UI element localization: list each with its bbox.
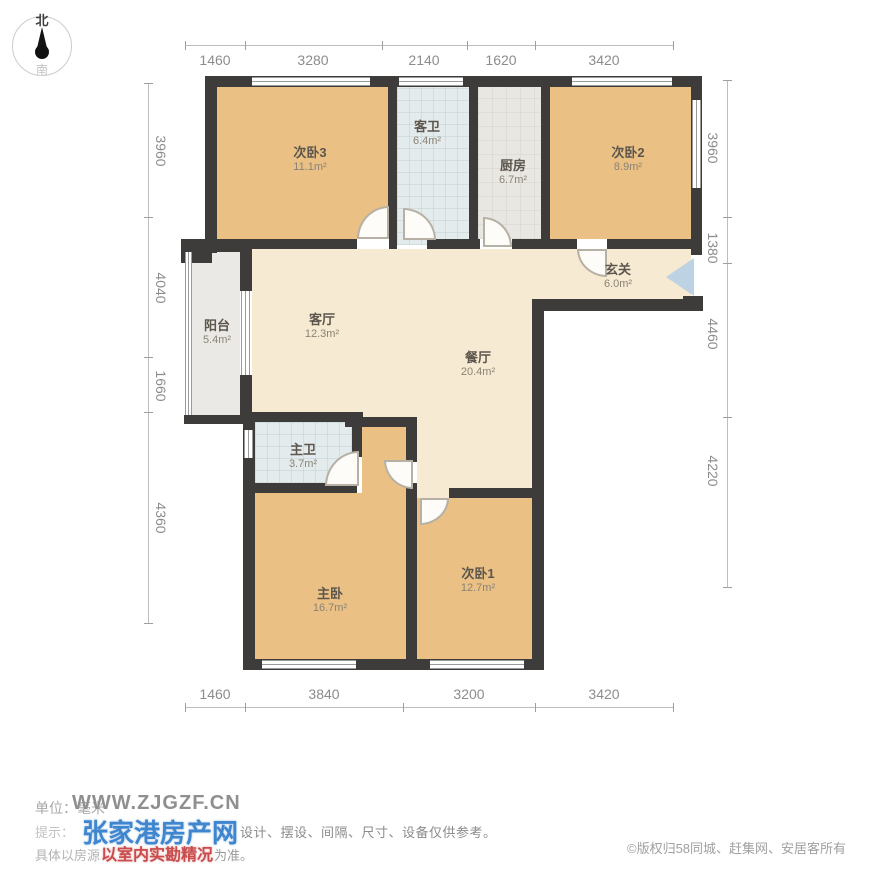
wall-kitchen-bedroom2 — [541, 87, 550, 239]
dimline-right — [727, 80, 728, 587]
disclaimer-text: 设计、摆设、间隔、尺寸、设备仅供参考。 — [240, 822, 497, 841]
room-area: 12.3m² — [305, 327, 339, 341]
wall-hall-4 — [512, 239, 577, 249]
dim-tick — [144, 217, 153, 218]
window-bedroom2-right — [692, 100, 701, 188]
dim-top-2: 3280 — [283, 52, 343, 68]
window-balcony-slider — [241, 291, 250, 375]
wall-nook-right — [406, 417, 417, 462]
room-name: 次卧3 — [293, 145, 326, 160]
wall-hall-3 — [427, 239, 480, 249]
dim-tick — [245, 41, 246, 50]
label-master: 主卧 16.7m² — [313, 586, 347, 615]
room-name: 玄关 — [604, 262, 632, 277]
dim-right-4: 4220 — [705, 441, 721, 501]
dim-tick — [723, 587, 732, 588]
dim-right-1: 3960 — [705, 118, 721, 178]
room-area: 16.7m² — [313, 601, 347, 615]
room-name: 主卧 — [313, 586, 347, 601]
wall-exterior-left-upper — [205, 76, 217, 253]
entry-arrow-icon — [666, 258, 694, 296]
dim-tick — [673, 703, 674, 712]
dim-bottom-1: 1460 — [185, 686, 245, 702]
label-guest-bath: 客卫 6.4m² — [413, 119, 441, 148]
dim-tick — [467, 41, 468, 50]
room-area: 3.7m² — [289, 457, 317, 471]
room-name: 次卧1 — [461, 566, 495, 581]
dim-top-3: 2140 — [394, 52, 454, 68]
dim-top-5: 3420 — [574, 52, 634, 68]
dim-top-4: 1620 — [471, 52, 531, 68]
wall-exterior-right-lower — [532, 299, 544, 670]
label-master-bath: 主卫 3.7m² — [289, 442, 317, 471]
label-kitchen: 厨房 6.7m² — [499, 158, 527, 187]
dim-tick — [185, 703, 186, 712]
dim-bottom-4: 3420 — [574, 686, 634, 702]
floorplan-page: 北 南 — [0, 0, 880, 875]
floor-dining-south — [417, 420, 532, 498]
label-entry: 玄关 6.0m² — [604, 262, 632, 291]
window-bedroom1 — [430, 660, 524, 669]
room-area: 8.9m² — [611, 160, 644, 174]
dim-bottom-2: 3840 — [294, 686, 354, 702]
room-area: 6.7m² — [499, 173, 527, 187]
compass-south-label: 南 — [13, 61, 71, 78]
compass-needle-dot — [35, 45, 49, 59]
window-balcony-left — [185, 252, 192, 415]
label-bedroom3: 次卧3 11.1m² — [293, 145, 326, 174]
room-name: 餐厅 — [461, 350, 495, 365]
disclaimer-line3-prefix: 具体以房源 — [35, 845, 100, 864]
site-watermark: WWW.ZJGZF.CN — [72, 792, 241, 815]
room-name: 客厅 — [305, 312, 339, 327]
wall-hall-2 — [389, 239, 397, 249]
window-masterbath-left — [244, 430, 253, 458]
dimline-bottom — [185, 707, 673, 708]
disclaimer-line3-suffix: 为准。 — [214, 845, 253, 864]
dim-tick — [382, 41, 383, 50]
dim-tick — [723, 217, 732, 218]
dim-top-1: 1460 — [185, 52, 245, 68]
dim-tick — [723, 263, 732, 264]
dim-tick — [144, 357, 153, 358]
red-watermark: 以室内实勘精况 — [101, 841, 213, 865]
room-name: 厨房 — [499, 158, 527, 173]
dim-tick — [144, 83, 153, 84]
wall-master-bedroom1 — [406, 483, 417, 670]
wall-hall-5 — [607, 239, 691, 249]
room-area: 12.7m² — [461, 581, 495, 595]
floor-master — [255, 493, 406, 659]
dim-right-3: 4460 — [705, 304, 721, 364]
dim-left-4: 4360 — [153, 488, 169, 548]
label-dining: 餐厅 20.4m² — [461, 350, 495, 379]
compass-icon: 北 南 — [12, 16, 72, 76]
label-bedroom1: 次卧1 12.7m² — [461, 566, 495, 595]
dim-tick — [535, 703, 536, 712]
window-bedroom3 — [252, 77, 370, 86]
room-name: 阳台 — [203, 318, 231, 333]
dim-right-2: 1380 — [705, 218, 721, 278]
dimline-top — [185, 45, 673, 46]
wall-hall-1 — [211, 239, 357, 249]
window-bedroom2-top — [572, 77, 672, 86]
wall-bedroom1-top — [449, 488, 544, 498]
dim-left-1: 3960 — [153, 121, 169, 181]
wall-guestbath-kitchen — [469, 87, 478, 247]
copyright-text: ©版权归58同城、赶集网、安居客所有 — [627, 838, 846, 857]
label-living: 客厅 12.3m² — [305, 312, 339, 341]
wall-entry-bottom — [535, 299, 703, 311]
dim-tick — [723, 417, 732, 418]
label-balcony: 阳台 5.4m² — [203, 318, 231, 347]
room-area: 11.1m² — [293, 160, 326, 174]
room-area: 20.4m² — [461, 365, 495, 379]
dimline-left — [148, 83, 149, 623]
dim-tick — [144, 412, 153, 413]
tip-prefix: 提示： — [35, 822, 74, 841]
label-bedroom2: 次卧2 8.9m² — [611, 145, 644, 174]
room-name: 主卫 — [289, 442, 317, 457]
window-master — [262, 660, 356, 669]
room-area: 6.0m² — [604, 277, 632, 291]
dim-tick — [535, 41, 536, 50]
dim-tick — [245, 703, 246, 712]
wall-balcony-right-upper — [240, 243, 252, 291]
room-name: 客卫 — [413, 119, 441, 134]
room-name: 次卧2 — [611, 145, 644, 160]
dim-bottom-3: 3200 — [439, 686, 499, 702]
dim-left-3: 1660 — [153, 356, 169, 416]
dim-tick — [144, 623, 153, 624]
dim-left-2: 4040 — [153, 258, 169, 318]
room-area: 5.4m² — [203, 333, 231, 347]
dim-tick — [185, 41, 186, 50]
dim-tick — [403, 703, 404, 712]
dim-tick — [723, 80, 732, 81]
window-guest-bath — [399, 77, 463, 86]
dim-tick — [673, 41, 674, 50]
room-area: 6.4m² — [413, 134, 441, 148]
wall-bedroom3-guestbath — [388, 87, 397, 239]
